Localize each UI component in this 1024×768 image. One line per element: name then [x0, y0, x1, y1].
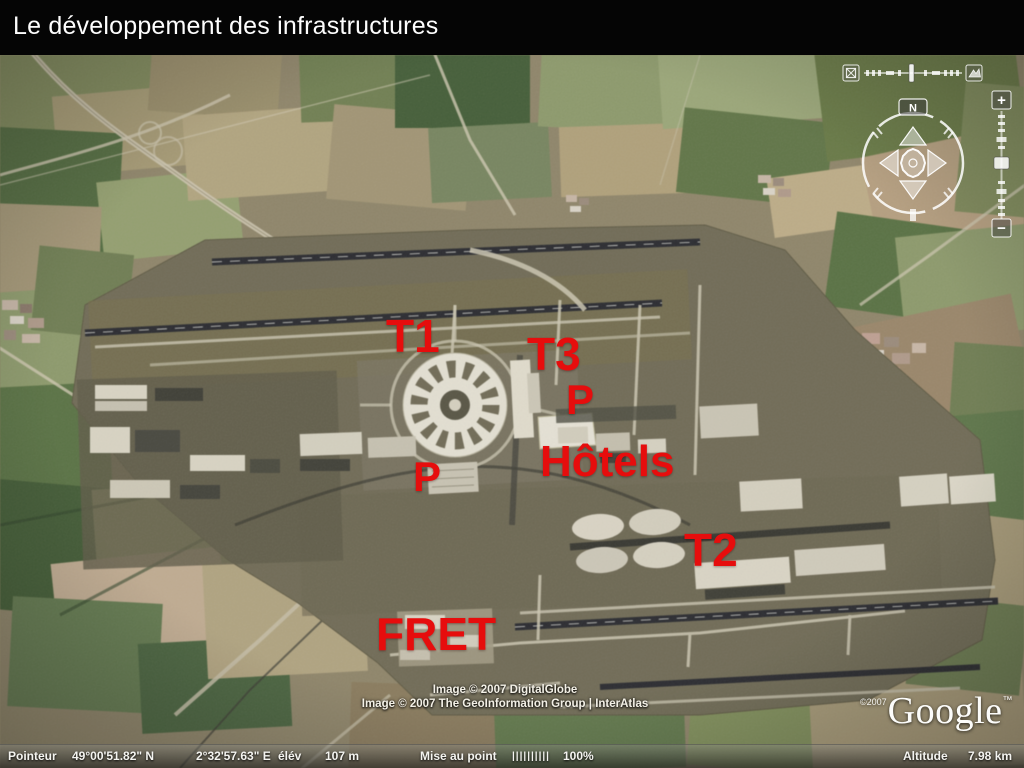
compass-north-label: N	[909, 103, 917, 115]
pan-up-arrow[interactable]	[900, 127, 926, 145]
imagery-attribution: Image © 2007 DigitalGlobe Image © 2007 T…	[195, 683, 815, 711]
pan-right-arrow[interactable]	[928, 150, 946, 176]
compass-south-tick	[910, 209, 916, 221]
zoom-slider-track[interactable]	[994, 111, 1009, 219]
status-bar: Pointeur 49°00'51.82" N 2°32'57.63" E él…	[0, 744, 1024, 768]
slide-title: Le développement des infrastructures	[13, 0, 439, 52]
altitude-label: Altitude	[903, 749, 948, 763]
google-watermark: ©2007Google™	[860, 689, 1013, 733]
pointer-label: Pointeur	[8, 749, 57, 763]
streaming-label: Mise au point	[420, 749, 497, 763]
compass-center-knob[interactable]	[901, 149, 925, 177]
map-annotation-p-t1: P	[413, 456, 441, 498]
zoom-in-label: +	[997, 92, 1006, 109]
zoom-out-label: −	[997, 220, 1006, 237]
map-annotation-t3: T3	[527, 331, 581, 377]
map-annotation-fret: FRET	[376, 611, 496, 657]
map-annotation-t1: T1	[386, 313, 440, 359]
map-annotation-t2: T2	[684, 527, 738, 573]
attribution-line2: Image © 2007 The GeoInformation Group | …	[195, 697, 815, 711]
map-annotation-p-t3: P	[566, 379, 594, 421]
streaming-percent: 100%	[563, 749, 594, 763]
zoom-control: + −	[990, 89, 1014, 239]
slide-title-bar: Le développement des infrastructures	[0, 0, 1024, 55]
pointer-latitude: 49°00'51.82" N	[72, 749, 154, 763]
google-logo: Google	[888, 690, 1003, 732]
pan-left-arrow[interactable]	[880, 150, 898, 176]
satellite-map[interactable]: T1T3PHôtelsPT2FRET Image © 2007 DigitalG…	[0, 55, 1024, 768]
compass-control: N	[853, 97, 973, 229]
tilt-slider-handle[interactable]	[909, 64, 914, 82]
tilt-control	[842, 62, 984, 84]
streaming-ticks: ||||||||||	[512, 751, 550, 762]
zoom-slider-handle[interactable]	[994, 157, 1009, 169]
watermark-copyright: ©2007	[860, 697, 887, 707]
altitude-value: 7.98 km	[968, 749, 1012, 763]
attribution-line1: Image © 2007 DigitalGlobe	[195, 683, 815, 697]
slide: Le développement des infrastructures	[0, 0, 1024, 768]
map-annotation-hotels: Hôtels	[540, 440, 674, 484]
tilt-slider-track[interactable]	[864, 64, 962, 82]
elevation-label: élév	[278, 749, 301, 763]
pointer-longitude: 2°32'57.63" E	[196, 749, 271, 763]
pan-down-arrow[interactable]	[900, 181, 926, 199]
compass-north-button[interactable]: N	[899, 99, 927, 115]
elevation-value: 107 m	[325, 749, 359, 763]
trademark-symbol: ™	[1003, 695, 1013, 706]
